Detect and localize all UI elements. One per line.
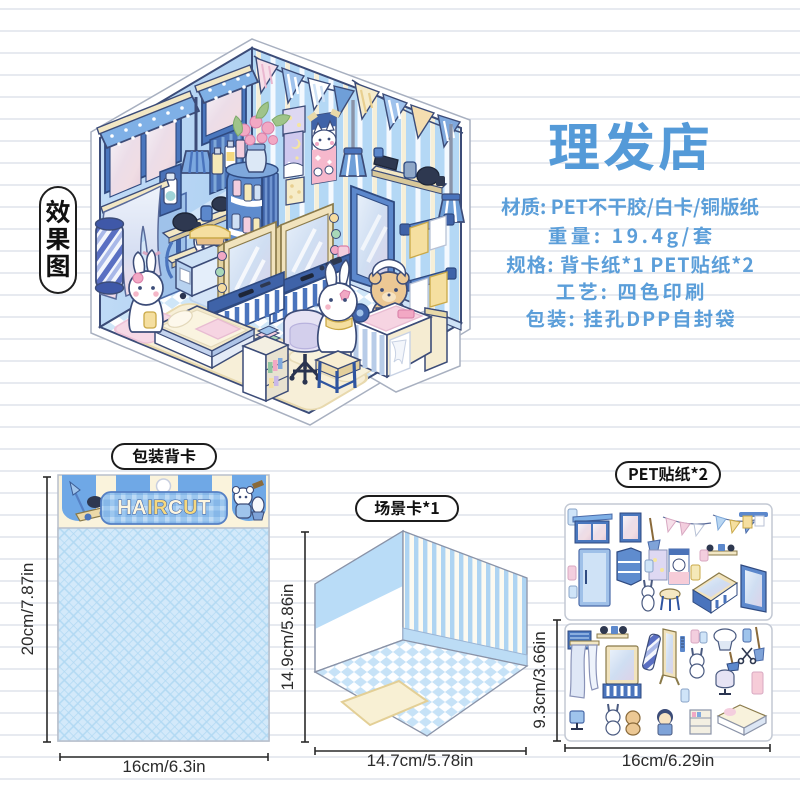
svg-text:HAIRCUT: HAIRCUT xyxy=(117,497,211,519)
svg-text:9.3cm/3.66in: 9.3cm/3.66in xyxy=(530,631,549,728)
svg-text:16cm/6.3in: 16cm/6.3in xyxy=(122,757,205,776)
svg-text:16cm/6.29in: 16cm/6.29in xyxy=(622,751,715,770)
svg-text:20cm/7.87in: 20cm/7.87in xyxy=(18,563,37,656)
svg-text:14.7cm/5.78in: 14.7cm/5.78in xyxy=(367,751,474,770)
svg-text:14.9cm/5.86in: 14.9cm/5.86in xyxy=(278,584,297,691)
